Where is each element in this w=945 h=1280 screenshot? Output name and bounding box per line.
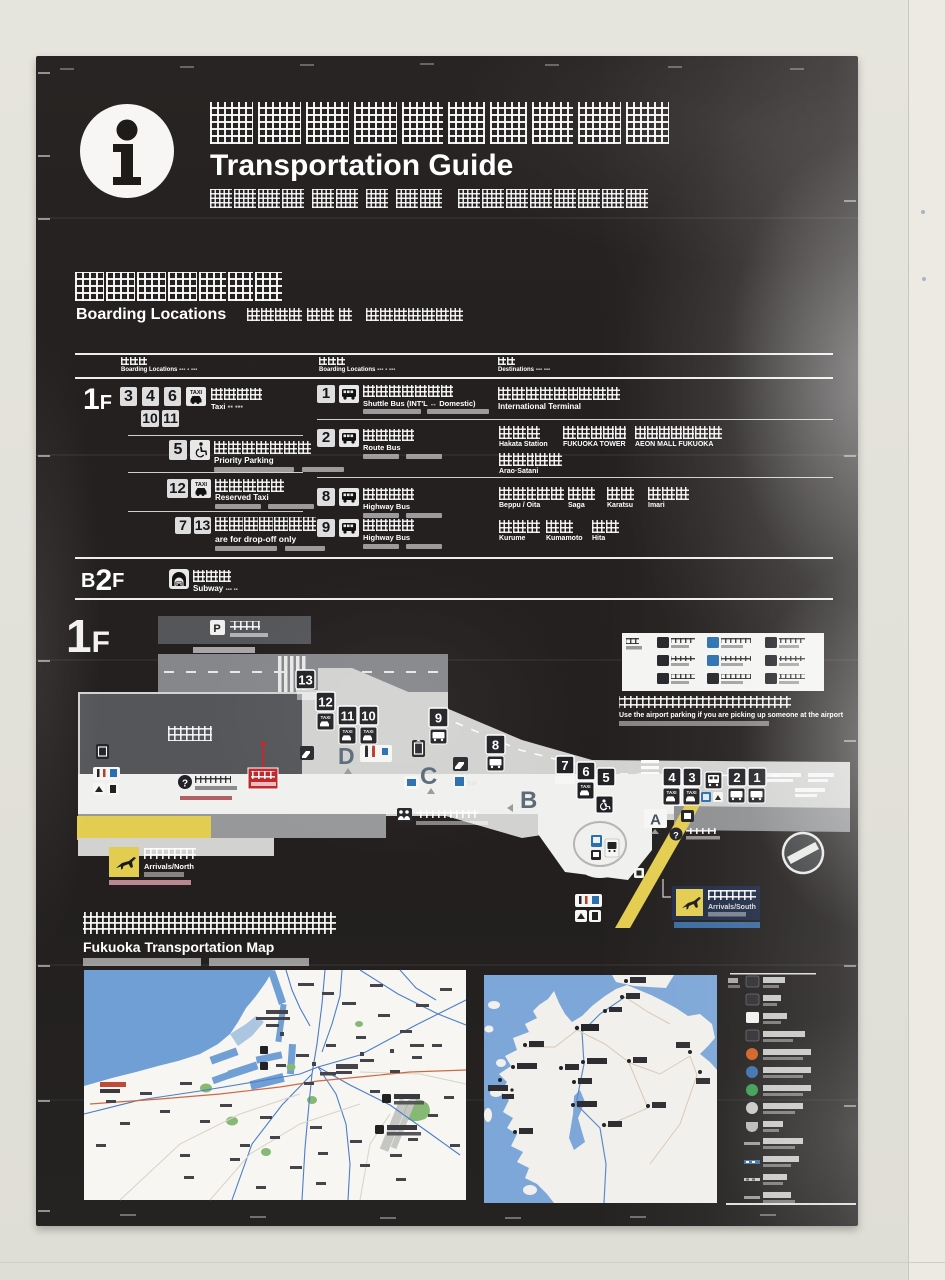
svg-text:TAXI: TAXI [667,790,677,795]
svg-text:10: 10 [361,709,375,724]
svg-text:6: 6 [582,764,589,779]
svg-text:TAXI: TAXI [687,790,697,795]
svg-text:TAXI: TAXI [343,729,353,734]
svg-text:B: B [520,787,537,814]
svg-text:2: 2 [733,770,740,785]
svg-text:1F: 1F [66,610,110,662]
svg-text:TAXI: TAXI [364,729,374,734]
svg-text:11: 11 [341,709,355,724]
svg-text:TAXI: TAXI [581,784,591,789]
svg-text:8: 8 [492,738,499,753]
svg-text:B1F: B1F [468,781,477,787]
svg-text:9: 9 [435,711,442,726]
svg-text:TAXI: TAXI [195,482,208,488]
svg-text:TAXI: TAXI [190,390,203,396]
svg-text:D: D [338,743,355,769]
svg-text:TAXI: TAXI [321,715,331,720]
svg-text:P: P [213,623,220,635]
svg-text:A: A [650,812,661,829]
svg-text:?: ? [182,779,188,790]
svg-text:Use the airport parking if you: Use the airport parking if you are picki… [619,712,844,719]
svg-text:4: 4 [668,770,676,785]
svg-text:?: ? [673,831,679,841]
svg-text:13: 13 [298,673,312,688]
svg-text:12: 12 [318,695,332,710]
svg-text:1: 1 [753,770,760,785]
svg-text:5: 5 [602,770,609,785]
svg-text:7: 7 [561,758,568,773]
svg-text:Fukuoka Transportation Map: Fukuoka Transportation Map [83,939,274,955]
svg-text:Arrivals/North: Arrivals/North [144,862,194,871]
svg-text:C: C [420,763,437,790]
svg-text:3: 3 [688,770,695,785]
